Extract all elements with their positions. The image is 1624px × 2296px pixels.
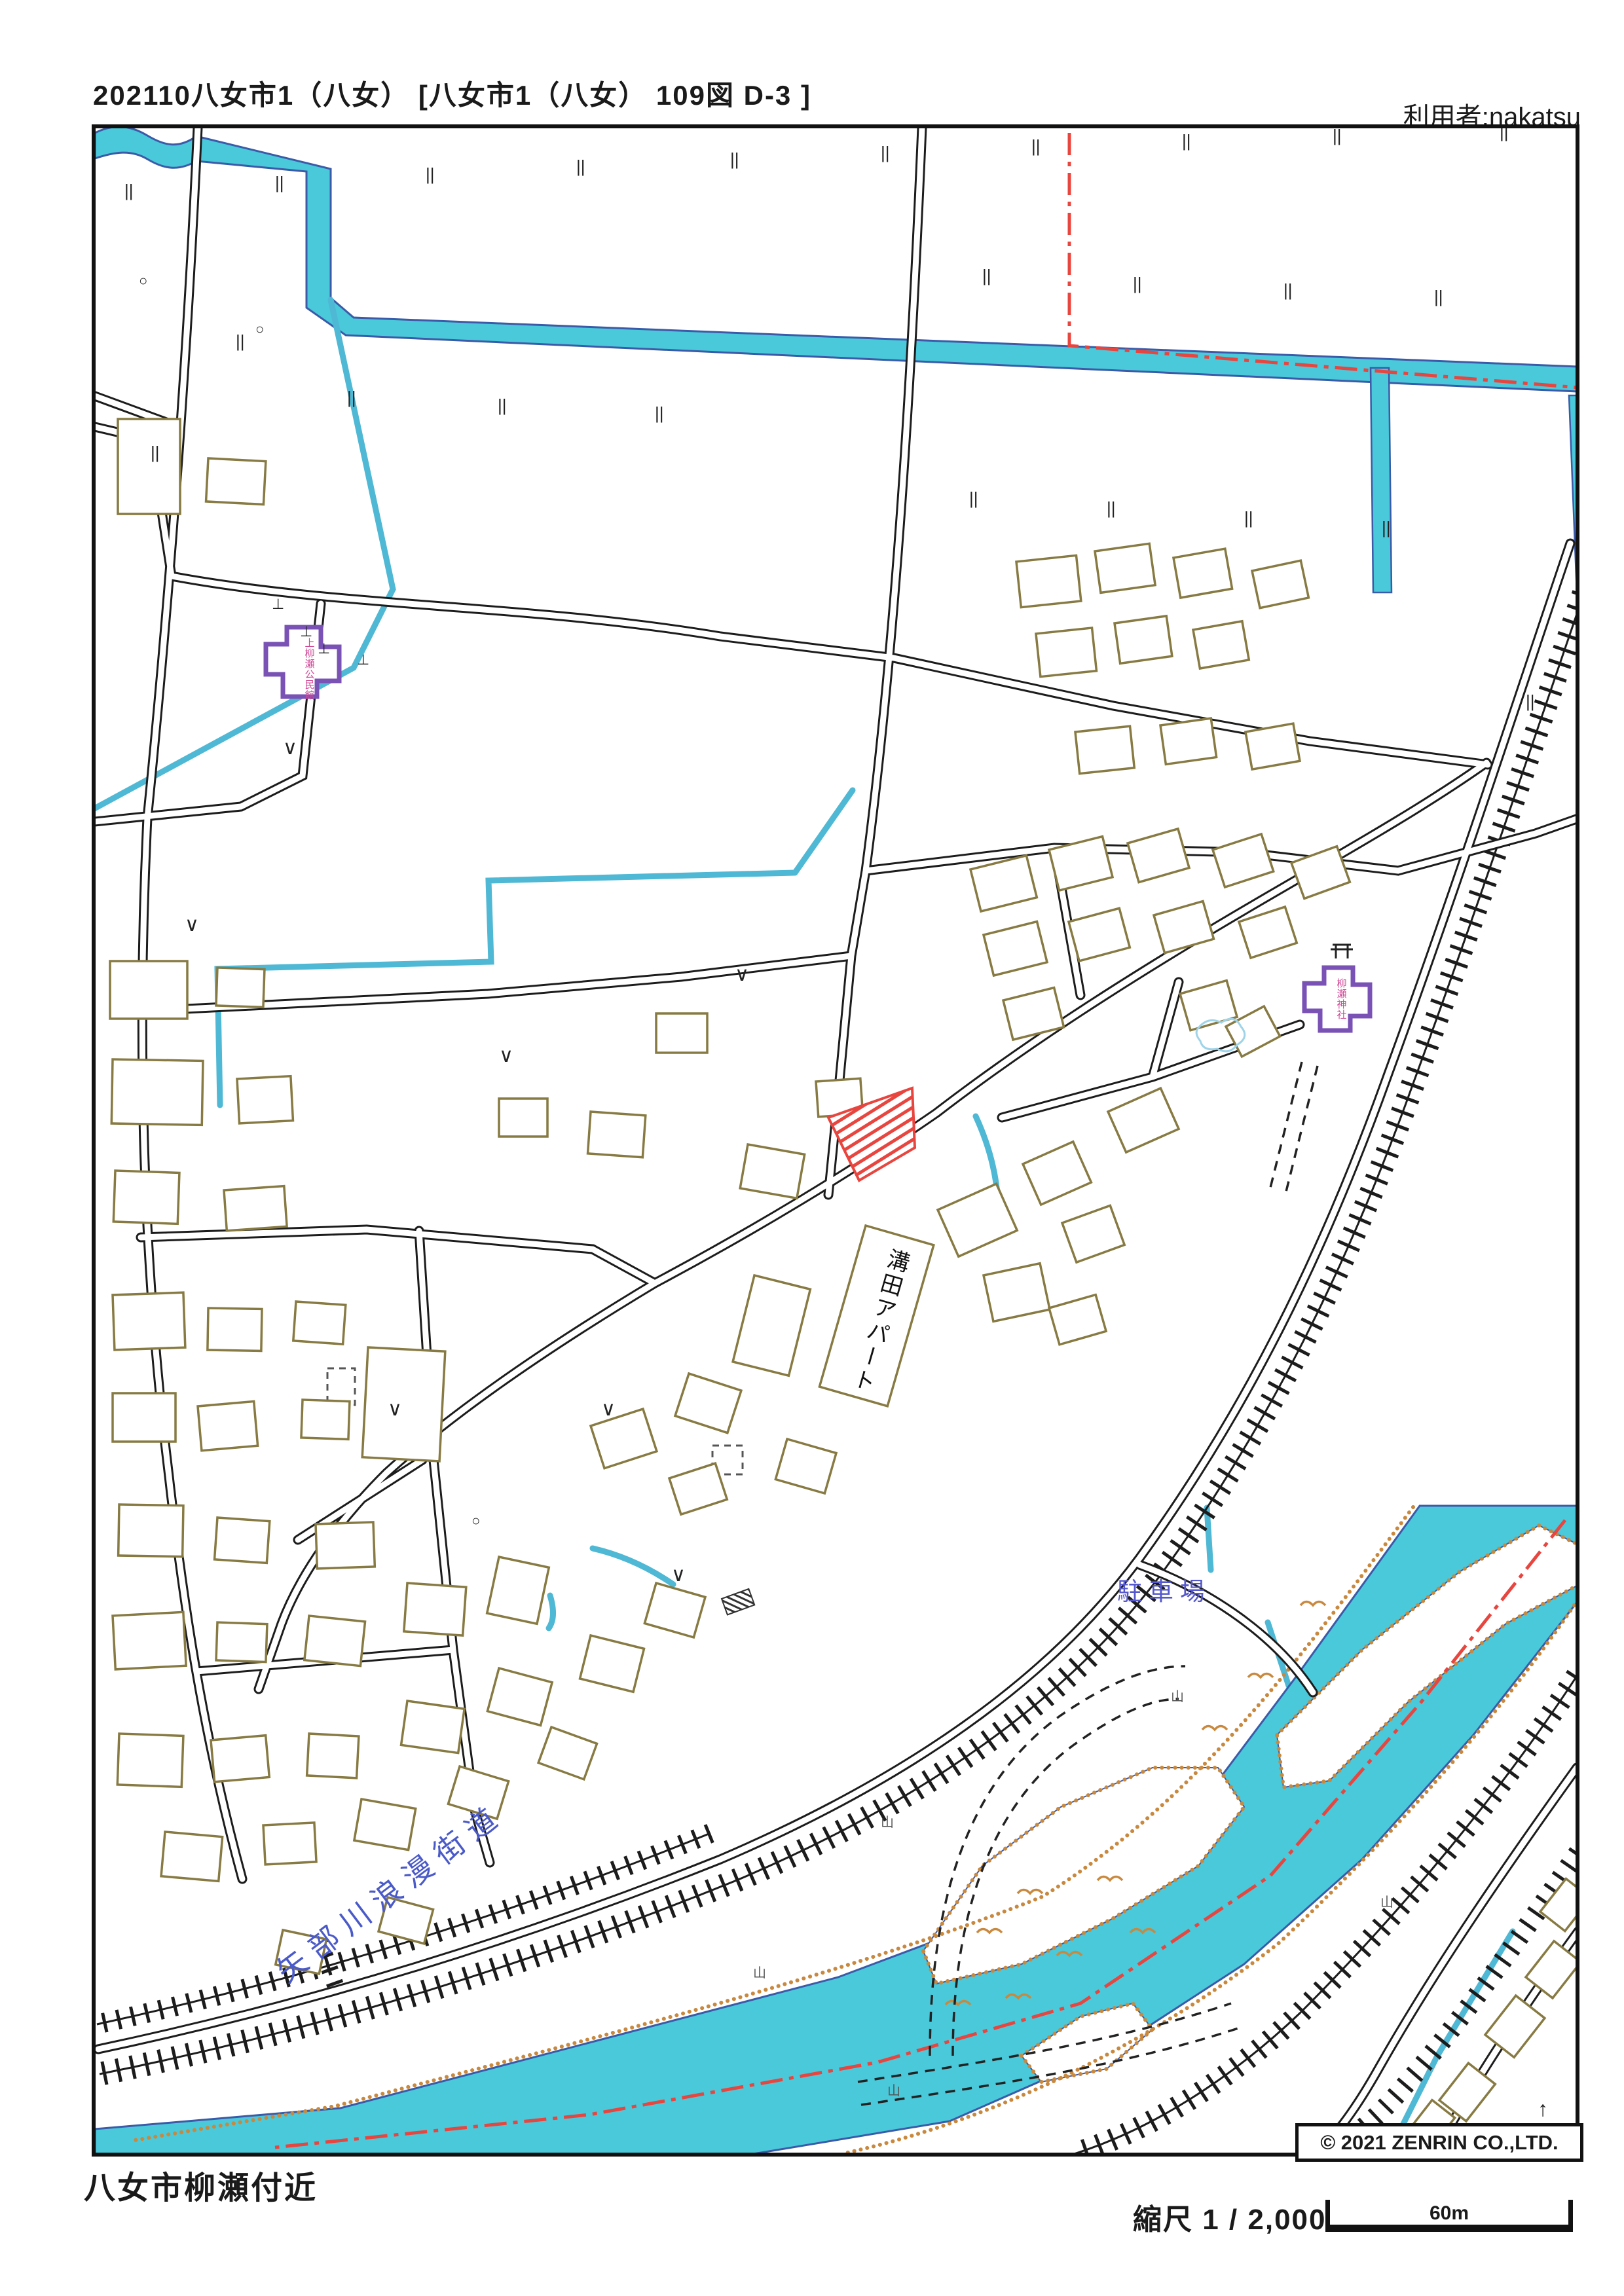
svg-text:||: || — [1133, 274, 1142, 293]
svg-text:∨: ∨ — [283, 737, 297, 759]
svg-text:○: ○ — [471, 1512, 480, 1529]
svg-text:||: || — [982, 266, 991, 285]
svg-text:∨: ∨ — [388, 1398, 402, 1420]
svg-text:||: || — [1182, 131, 1191, 151]
svg-text:||: || — [1333, 126, 1342, 145]
svg-text:山: 山 — [887, 2083, 900, 2098]
public-buildings: 上柳瀬公民館 柳瀬神社 — [266, 627, 1370, 1030]
svg-text:||: || — [881, 143, 890, 162]
scale-distance: 60m — [1430, 2202, 1469, 2225]
svg-text:||: || — [151, 443, 160, 462]
community-center-label: 上柳瀬公民館 — [304, 638, 315, 701]
arrow-symbol: ↑ — [1538, 2097, 1548, 2121]
svg-text:||: || — [1283, 280, 1293, 300]
svg-text:∨: ∨ — [601, 1398, 616, 1420]
stream-spur — [795, 790, 853, 873]
svg-text:⊥: ⊥ — [272, 596, 284, 612]
svg-text:⊥: ⊥ — [300, 623, 312, 640]
scale-label: 縮尺 1 / 2,000 — [1133, 2196, 1326, 2238]
svg-text:||: || — [1107, 498, 1116, 518]
svg-text:∨: ∨ — [671, 1564, 686, 1586]
svg-text:||: || — [1031, 136, 1041, 156]
svg-text:||: || — [236, 331, 245, 351]
river-body — [95, 1506, 1578, 2154]
stream-town-2 — [549, 1595, 553, 1628]
svg-text:||: || — [969, 488, 978, 508]
scale-bar: 60m — [1325, 2200, 1573, 2232]
svg-text:⊥: ⊥ — [357, 651, 369, 668]
svg-text:山: 山 — [753, 1965, 766, 1980]
map-sheet: 202110八女市1（八女） [八女市1（八女） 109図 D-3 ] 利用者:… — [0, 0, 1624, 2296]
area-name: 八女市柳瀬付近 — [84, 2162, 318, 2208]
svg-text:||: || — [655, 403, 664, 423]
svg-text:○: ○ — [139, 272, 147, 289]
svg-text:∨: ∨ — [735, 964, 749, 985]
paddy-symbols: |||| |||| |||| |||| |||| |||| |||| |||| … — [124, 122, 1535, 711]
river — [95, 1506, 1579, 2154]
svg-text:||: || — [498, 395, 507, 415]
svg-text:||: || — [275, 173, 284, 192]
svg-text:||: || — [124, 181, 134, 200]
stream-parking-1 — [1207, 1508, 1211, 1570]
irrigation-channel-top — [95, 127, 1578, 392]
svg-text:山: 山 — [1380, 1895, 1393, 1910]
channel-branch-vertical — [1371, 368, 1392, 592]
map-canvas: 上柳瀬公民館 柳瀬神社 |||| |||| |||| |||| |||| |||… — [0, 0, 1624, 2296]
grass-symbols: ∨∨ ∨∨ ∨∨ ∨ — [185, 737, 749, 1586]
svg-text:∨: ∨ — [185, 914, 199, 936]
svg-text:⊥: ⊥ — [318, 640, 330, 657]
shrine-label: 柳瀬神社 — [1336, 978, 1347, 1020]
svg-text:○: ○ — [255, 321, 264, 337]
copyright-box: © 2021 ZENRIN CO.,LTD. — [1295, 2123, 1583, 2162]
hatched-building — [722, 1589, 754, 1614]
stream-northwest — [88, 300, 393, 812]
svg-text:∨: ∨ — [499, 1045, 513, 1066]
svg-text:||: || — [576, 156, 585, 176]
channel-right-edge — [1569, 395, 1599, 759]
svg-text:||: || — [347, 388, 356, 407]
svg-text:||: || — [1382, 518, 1391, 538]
stream-town-1 — [593, 1548, 673, 1584]
svg-text:||: || — [1434, 287, 1443, 306]
copyright-text: © 2021 ZENRIN CO.,LTD. — [1320, 2131, 1558, 2155]
torii-icon — [1331, 944, 1353, 958]
svg-text:山: 山 — [881, 1815, 894, 1830]
svg-text:山: 山 — [1171, 1689, 1184, 1704]
svg-text:||: || — [1244, 508, 1253, 528]
svg-text:||: || — [426, 164, 435, 184]
parking-label: 駐車場 — [1117, 1578, 1211, 1606]
svg-text:||: || — [730, 149, 739, 169]
svg-text:||: || — [1526, 691, 1535, 711]
